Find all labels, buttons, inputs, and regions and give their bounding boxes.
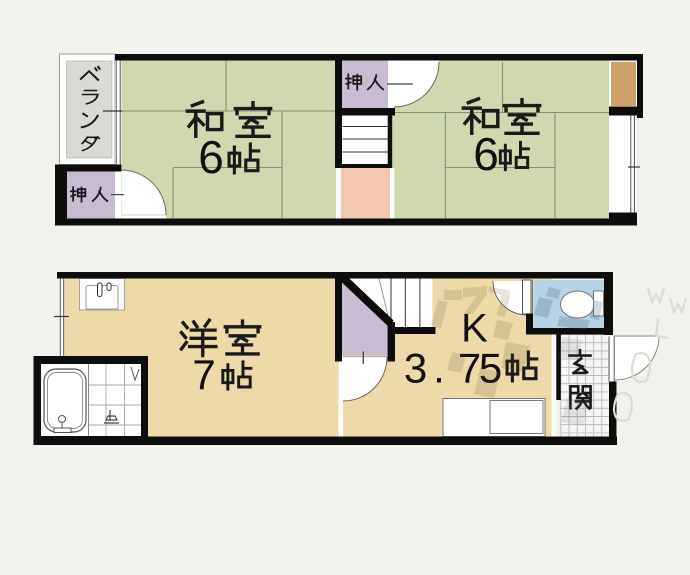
svg-text:6: 6 <box>473 128 499 180</box>
svg-text:7: 7 <box>192 351 215 398</box>
svg-text:3: 3 <box>404 345 427 392</box>
svg-text:6: 6 <box>198 131 224 183</box>
svg-text:.: . <box>433 345 445 392</box>
